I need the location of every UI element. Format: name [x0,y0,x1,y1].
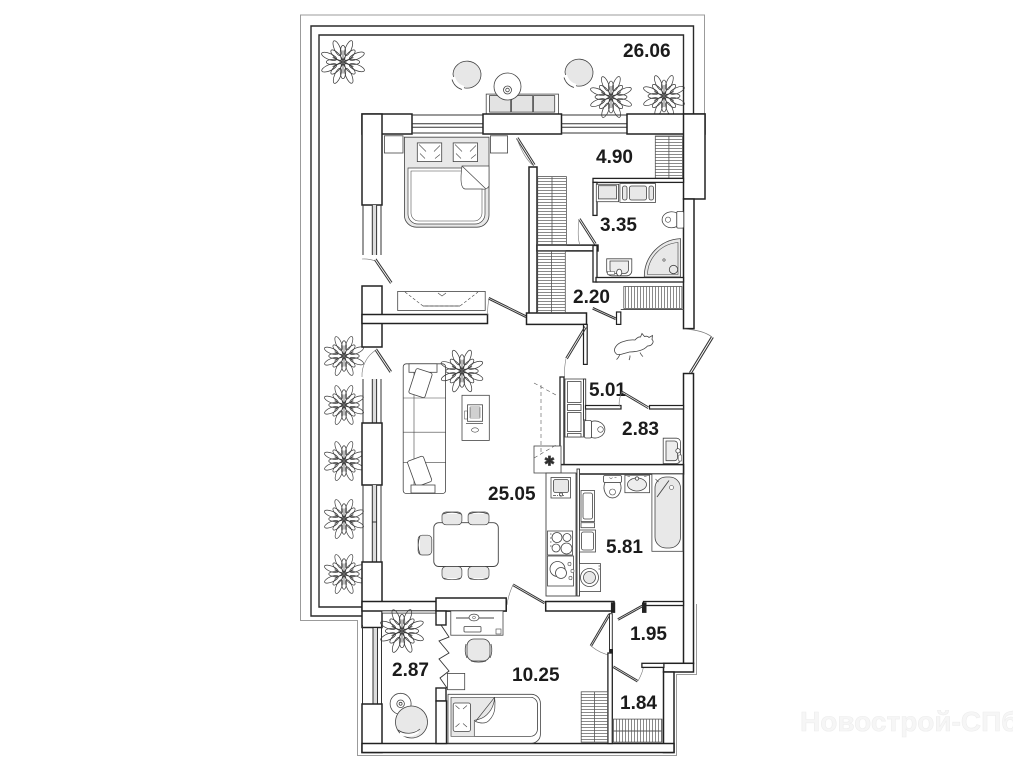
svg-text:✱: ✱ [544,454,555,469]
svg-text:2.87: 2.87 [392,660,429,681]
svg-text:Новострой-СПб: Новострой-СПб [800,706,1013,737]
svg-text:5.81: 5.81 [606,537,643,558]
svg-text:1.95: 1.95 [630,624,667,645]
svg-text:5.01: 5.01 [589,380,626,401]
svg-text:2.83: 2.83 [622,419,659,440]
svg-text:1.84: 1.84 [620,693,657,714]
svg-text:25.05: 25.05 [488,484,536,505]
svg-text:4.90: 4.90 [596,147,633,168]
svg-text:2.20: 2.20 [573,287,610,308]
svg-text:3.35: 3.35 [600,215,637,236]
svg-text:10.25: 10.25 [512,665,560,686]
svg-text:26.06: 26.06 [623,41,671,62]
